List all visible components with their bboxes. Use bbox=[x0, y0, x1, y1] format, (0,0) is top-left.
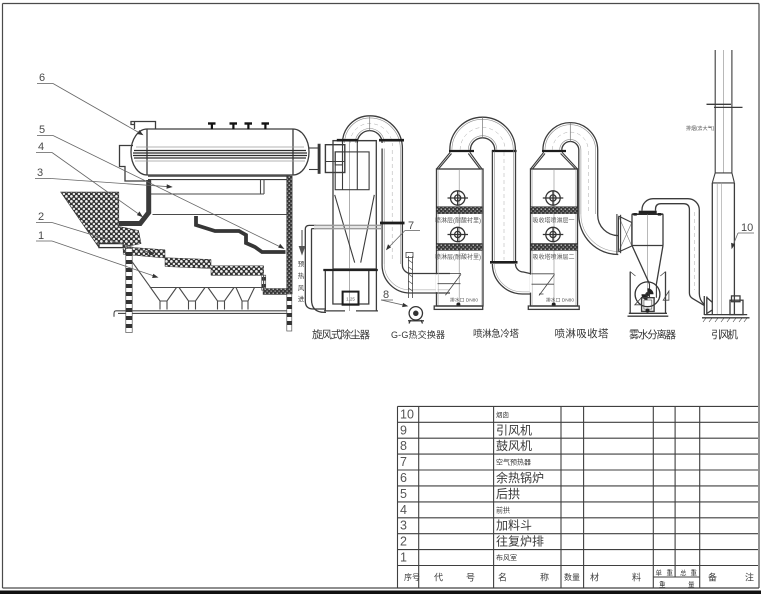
svg-text:备: 备 bbox=[708, 572, 717, 583]
svg-text:加料斗: 加料斗 bbox=[496, 519, 532, 533]
svg-text:后拱: 后拱 bbox=[496, 487, 520, 501]
svg-text:3: 3 bbox=[400, 519, 407, 533]
svg-text:空气预热器: 空气预热器 bbox=[496, 458, 531, 467]
svg-text:1: 1 bbox=[38, 230, 44, 242]
svg-text:热: 热 bbox=[298, 271, 305, 280]
svg-text:进: 进 bbox=[298, 295, 305, 303]
svg-text:2: 2 bbox=[38, 211, 44, 223]
svg-text:5: 5 bbox=[400, 487, 407, 501]
svg-text:布风室: 布风室 bbox=[496, 553, 517, 562]
svg-text:10: 10 bbox=[741, 222, 753, 234]
svg-text:总: 总 bbox=[680, 568, 687, 577]
svg-text:旋风式除尘器: 旋风式除尘器 bbox=[312, 328, 371, 341]
svg-text:8: 8 bbox=[383, 289, 389, 301]
svg-text:5: 5 bbox=[39, 124, 45, 136]
svg-text:1: 1 bbox=[400, 551, 407, 565]
svg-text:2: 2 bbox=[400, 535, 407, 549]
svg-text:往复炉排: 往复炉排 bbox=[496, 534, 544, 549]
svg-text:吸收塔喷淋层二: 吸收塔喷淋层二 bbox=[532, 253, 574, 261]
svg-text:喷淋急冷塔: 喷淋急冷塔 bbox=[473, 328, 519, 340]
svg-text:名: 名 bbox=[498, 572, 507, 583]
svg-text:单: 单 bbox=[656, 568, 663, 577]
svg-text:材: 材 bbox=[590, 572, 599, 583]
svg-text:量: 量 bbox=[688, 581, 695, 589]
svg-text:重: 重 bbox=[667, 569, 674, 577]
svg-text:代: 代 bbox=[434, 573, 443, 583]
svg-text:喷淋层(耐酸衬里): 喷淋层(耐酸衬里) bbox=[435, 217, 481, 225]
svg-text:前拱: 前拱 bbox=[496, 505, 510, 514]
svg-text:引风机: 引风机 bbox=[496, 423, 532, 437]
svg-text:预: 预 bbox=[298, 259, 305, 268]
svg-text:重: 重 bbox=[691, 569, 698, 577]
svg-text:喷淋层(耐酸衬里): 喷淋层(耐酸衬里) bbox=[435, 253, 481, 261]
svg-text:引风机: 引风机 bbox=[711, 328, 739, 341]
svg-text:排水口 DN80: 排水口 DN80 bbox=[546, 297, 574, 304]
svg-text:10: 10 bbox=[400, 407, 414, 421]
svg-text:风: 风 bbox=[298, 284, 305, 292]
svg-text:吸收塔喷淋层一: 吸收塔喷淋层一 bbox=[532, 217, 574, 225]
svg-text:注: 注 bbox=[745, 572, 754, 583]
svg-text:序号: 序号 bbox=[404, 572, 420, 582]
svg-text:排水口 DN80: 排水口 DN80 bbox=[450, 297, 478, 304]
svg-text:7: 7 bbox=[400, 455, 407, 469]
svg-text:料: 料 bbox=[632, 572, 641, 583]
svg-text:8: 8 bbox=[400, 439, 407, 453]
svg-text:1.25: 1.25 bbox=[346, 297, 355, 302]
svg-text:4: 4 bbox=[400, 503, 407, 517]
svg-text:重: 重 bbox=[659, 581, 666, 589]
svg-text:鼓风机: 鼓风机 bbox=[496, 439, 532, 453]
svg-text:号: 号 bbox=[466, 573, 475, 583]
svg-text:数量: 数量 bbox=[564, 572, 580, 582]
svg-text:9: 9 bbox=[400, 423, 407, 437]
svg-text:3: 3 bbox=[37, 167, 43, 179]
svg-text:6: 6 bbox=[39, 72, 45, 84]
svg-text:烟囱: 烟囱 bbox=[496, 410, 509, 419]
svg-text:6: 6 bbox=[400, 471, 407, 485]
svg-text:称: 称 bbox=[540, 572, 549, 583]
svg-text:余热锅炉: 余热锅炉 bbox=[496, 470, 544, 485]
svg-text:G-G热交换器: G-G热交换器 bbox=[391, 329, 445, 340]
svg-text:4: 4 bbox=[38, 141, 44, 153]
svg-text:雾水分离器: 雾水分离器 bbox=[629, 328, 677, 341]
svg-text:排烟(去大气): 排烟(去大气) bbox=[686, 125, 715, 132]
svg-text:喷淋吸收塔: 喷淋吸收塔 bbox=[555, 327, 610, 340]
